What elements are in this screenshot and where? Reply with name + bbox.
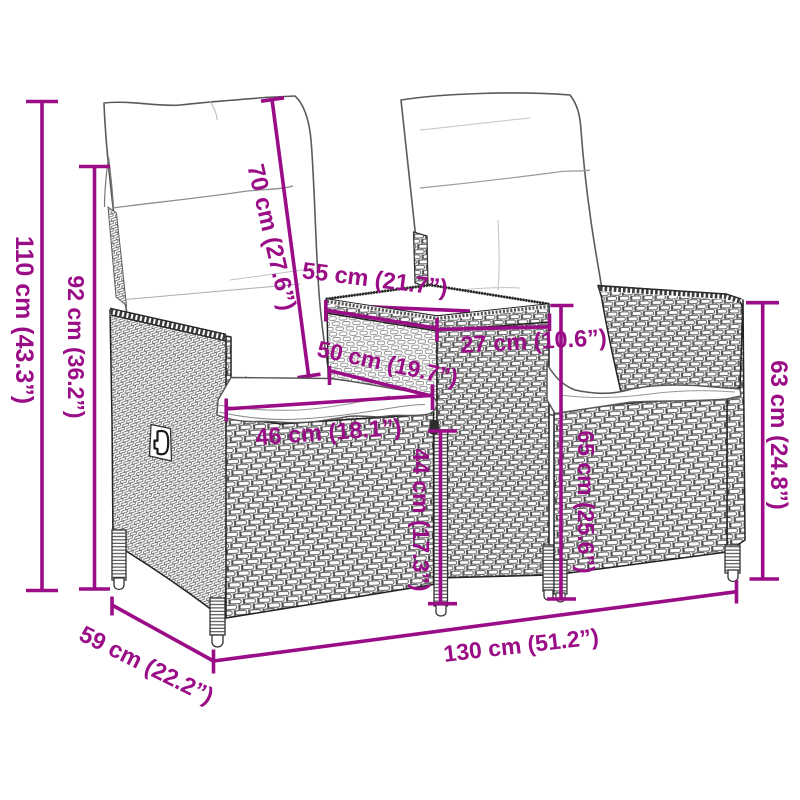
svg-text:92 cm (36.2”): 92 cm (36.2”): [63, 275, 89, 418]
svg-text:110 cm (43.3”): 110 cm (43.3”): [10, 236, 38, 404]
svg-text:65 cm (25.6”): 65 cm (25.6”): [573, 430, 599, 573]
svg-text:63 cm (24.8”): 63 cm (24.8”): [765, 360, 792, 509]
svg-text:44 cm (17.3”): 44 cm (17.3”): [408, 448, 434, 591]
